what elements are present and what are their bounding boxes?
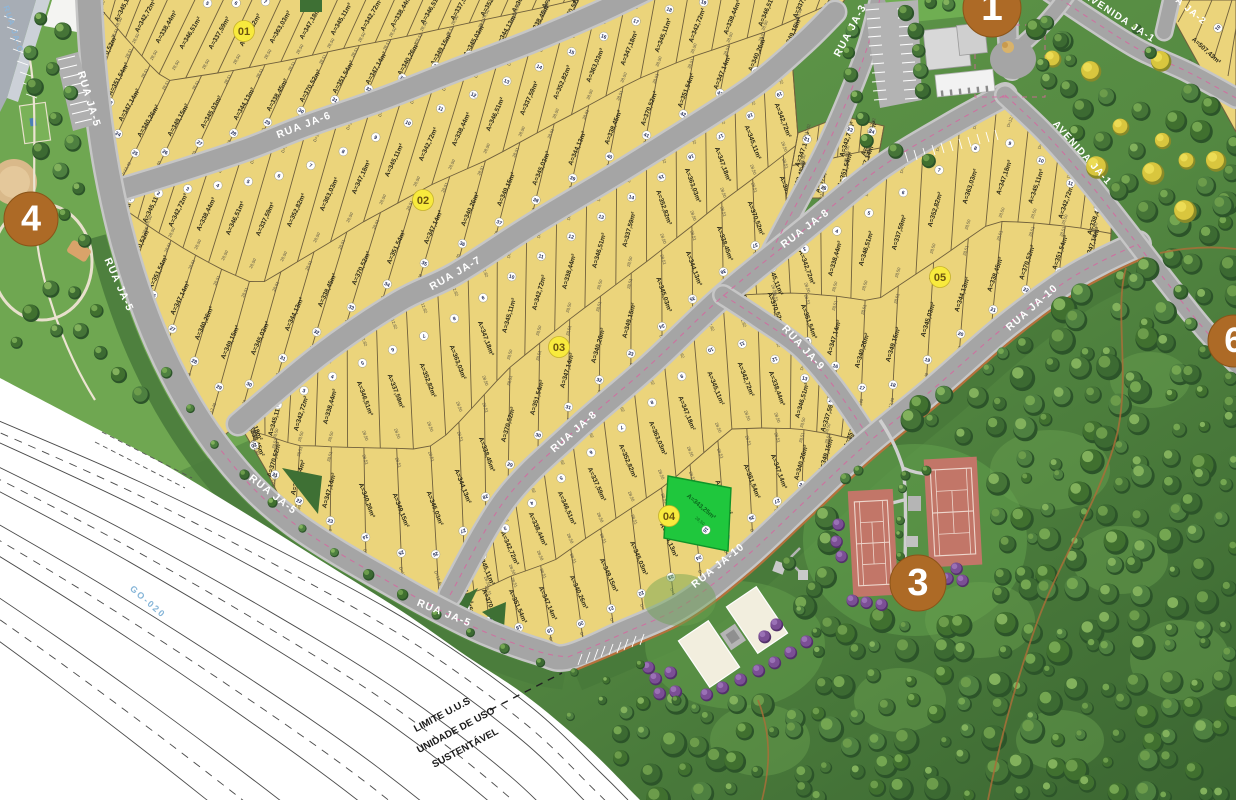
svg-text:03: 03 <box>553 342 565 354</box>
svg-text:6: 6 <box>1224 321 1236 360</box>
svg-text:3: 3 <box>907 562 928 604</box>
svg-text:4: 4 <box>21 197 41 238</box>
svg-text:1: 1 <box>981 0 1003 29</box>
svg-text:01: 01 <box>238 26 250 38</box>
svg-text:02: 02 <box>417 195 429 207</box>
svg-text:04: 04 <box>663 511 676 523</box>
svg-text:05: 05 <box>934 272 946 284</box>
